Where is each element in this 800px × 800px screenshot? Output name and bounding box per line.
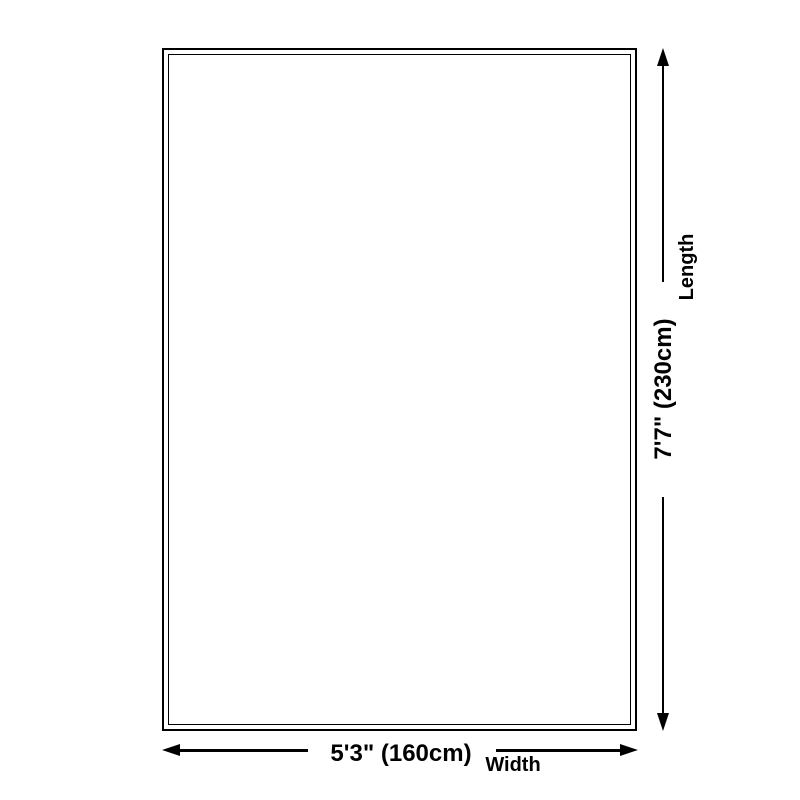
product-outline-inner-border (168, 54, 631, 725)
length-dimension-line-top (662, 59, 664, 282)
length-dimension-line-bottom (662, 497, 664, 716)
width-dimension-line-left (174, 749, 308, 751)
length-arrow-down-icon (657, 713, 669, 731)
length-value: 7'7" (230cm) (652, 318, 676, 459)
width-value: 5'3" (160cm) (330, 742, 471, 766)
width-label: Width (485, 755, 540, 775)
rug-dimension-diagram: Length 7'7" (230cm) 5'3" (160cm) Width (0, 0, 800, 800)
product-outline (162, 48, 637, 731)
length-label: Length (677, 234, 697, 301)
width-dimension-line-right (496, 749, 624, 751)
width-arrow-right-icon (620, 744, 638, 756)
